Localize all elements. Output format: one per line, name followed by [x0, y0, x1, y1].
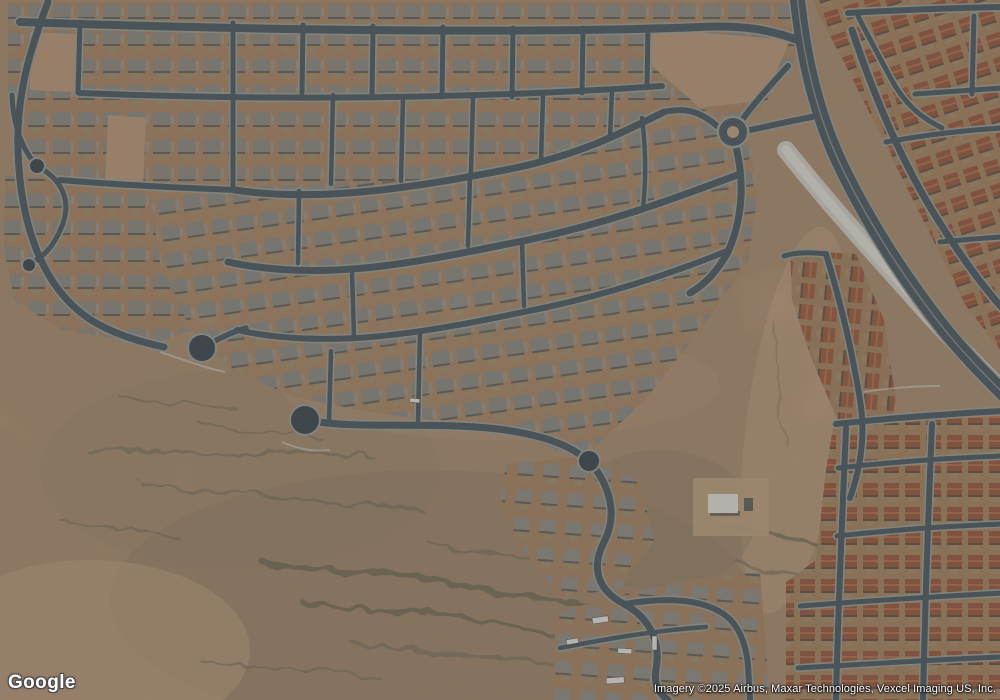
google-logo[interactable]: Google	[8, 672, 76, 694]
map-attribution: Imagery ©2025 Airbus, Maxar Technologies…	[654, 683, 996, 695]
map-viewport[interactable]: Google Imagery ©2025 Airbus, Maxar Techn…	[0, 0, 1000, 700]
satellite-imagery-canvas	[0, 0, 1000, 700]
